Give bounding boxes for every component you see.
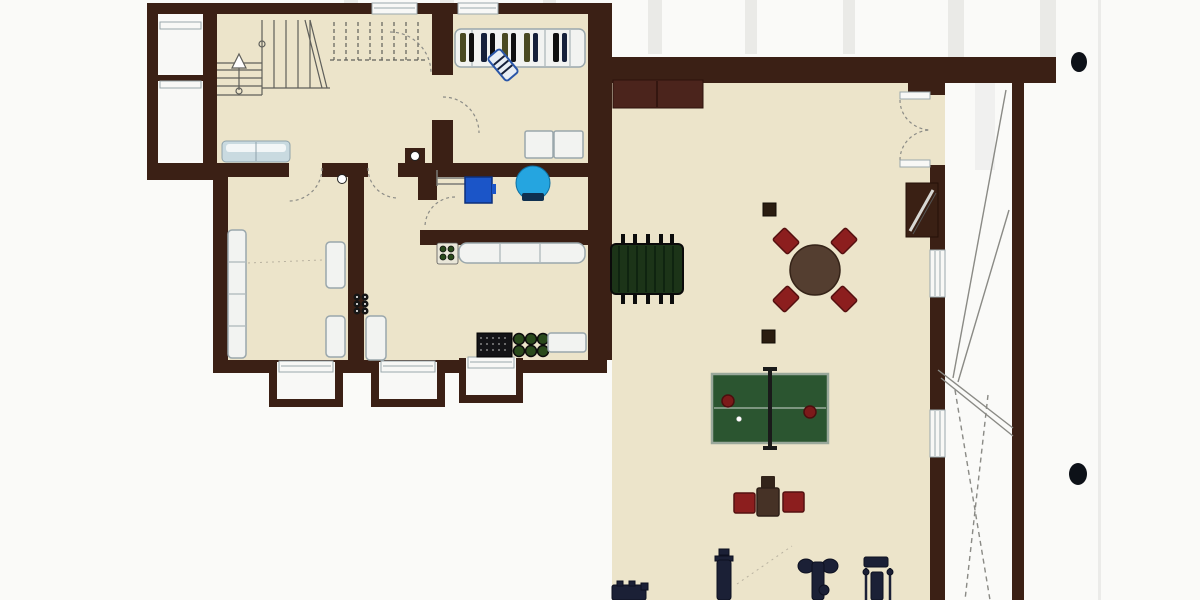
fireplace: [906, 183, 938, 237]
double-door-leaf-bottom: [900, 160, 930, 167]
floorplan-canvas: [0, 0, 1200, 600]
storage-crate: [477, 333, 512, 357]
double-door-leaf-top: [900, 92, 930, 99]
wall-shelf: [548, 333, 586, 352]
net: [768, 367, 772, 450]
ping-pong-table: [712, 367, 828, 450]
bottle-rack: [437, 243, 458, 264]
paddle: [804, 406, 816, 418]
furnace: [465, 177, 492, 203]
foosball-table: [611, 234, 683, 304]
hole-punch-marks: [1069, 52, 1087, 485]
kitchen-counter: [459, 243, 585, 263]
round-table: [790, 245, 840, 295]
floor-areas: [217, 14, 945, 600]
floorplan-page: [0, 0, 1200, 600]
rowing-machine: [612, 581, 648, 600]
weight-bench: [715, 549, 733, 600]
jug-bottles: [514, 334, 549, 357]
hall-counter: [222, 141, 290, 162]
paddle: [722, 395, 734, 407]
washer-dryer: [525, 131, 583, 158]
ball: [737, 417, 742, 422]
bar-cabinet: [613, 80, 703, 108]
